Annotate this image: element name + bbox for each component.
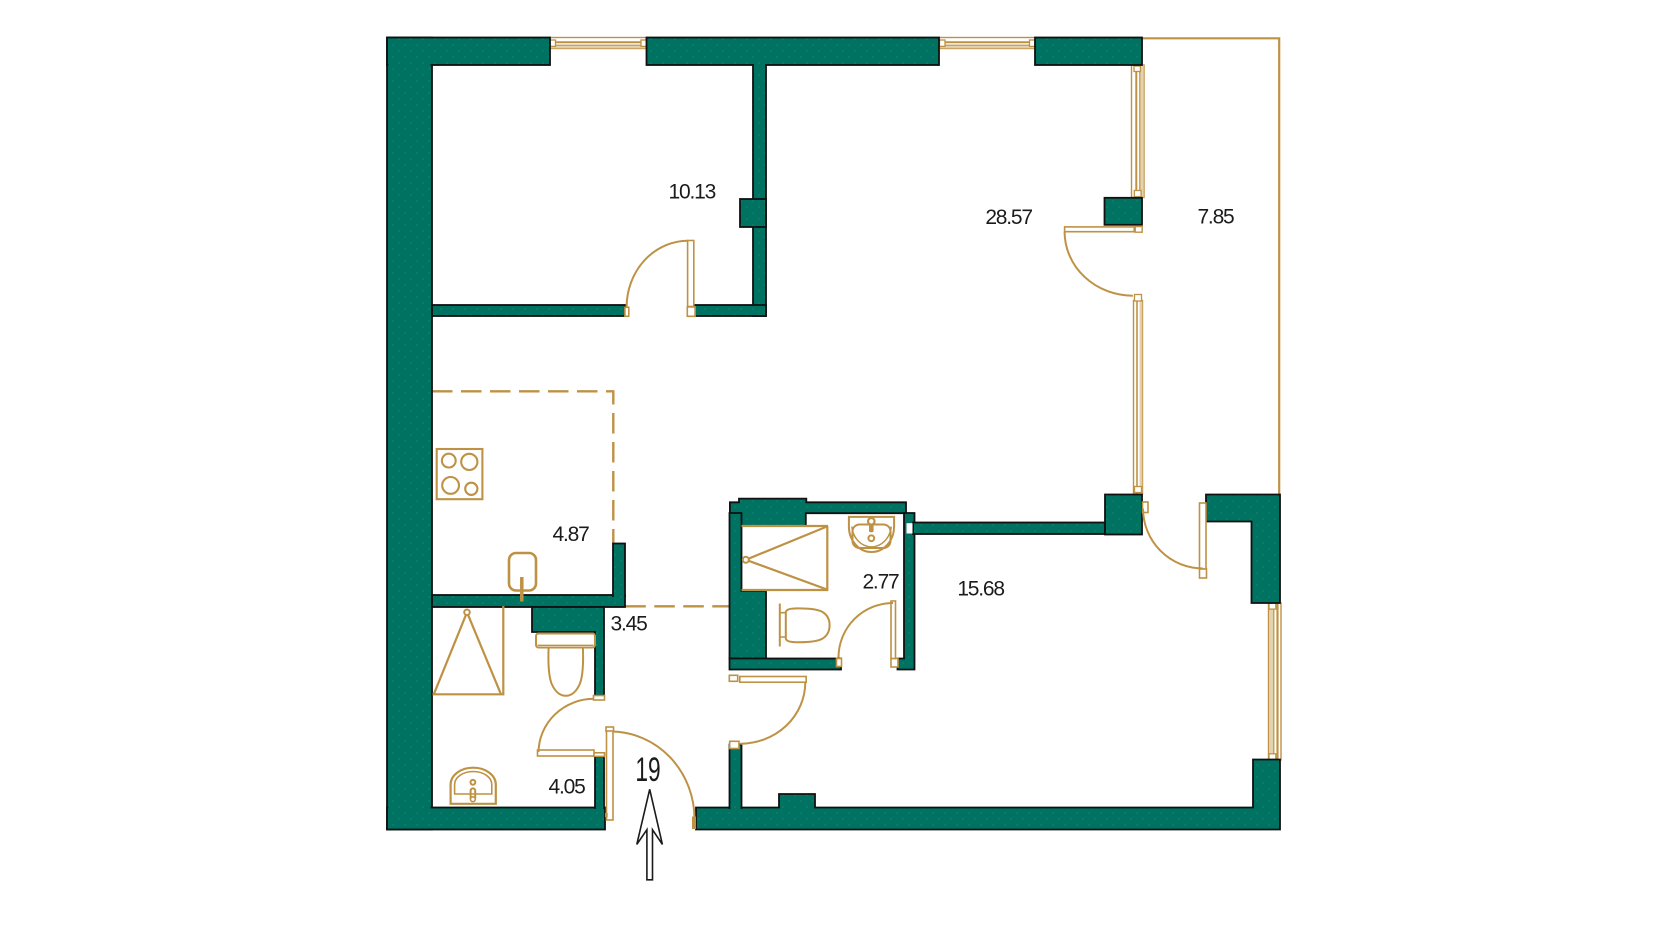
svg-text:2.77: 2.77	[862, 571, 899, 594]
svg-text:4.05: 4.05	[549, 776, 586, 799]
svg-text:15.68: 15.68	[957, 577, 1004, 600]
svg-text:7.85: 7.85	[1197, 205, 1234, 228]
svg-text:28.57: 28.57	[985, 206, 1032, 229]
svg-text:19: 19	[635, 751, 660, 789]
svg-text:10.13: 10.13	[669, 181, 716, 204]
svg-text:4.87: 4.87	[553, 523, 590, 546]
svg-text:3.45: 3.45	[611, 613, 648, 636]
